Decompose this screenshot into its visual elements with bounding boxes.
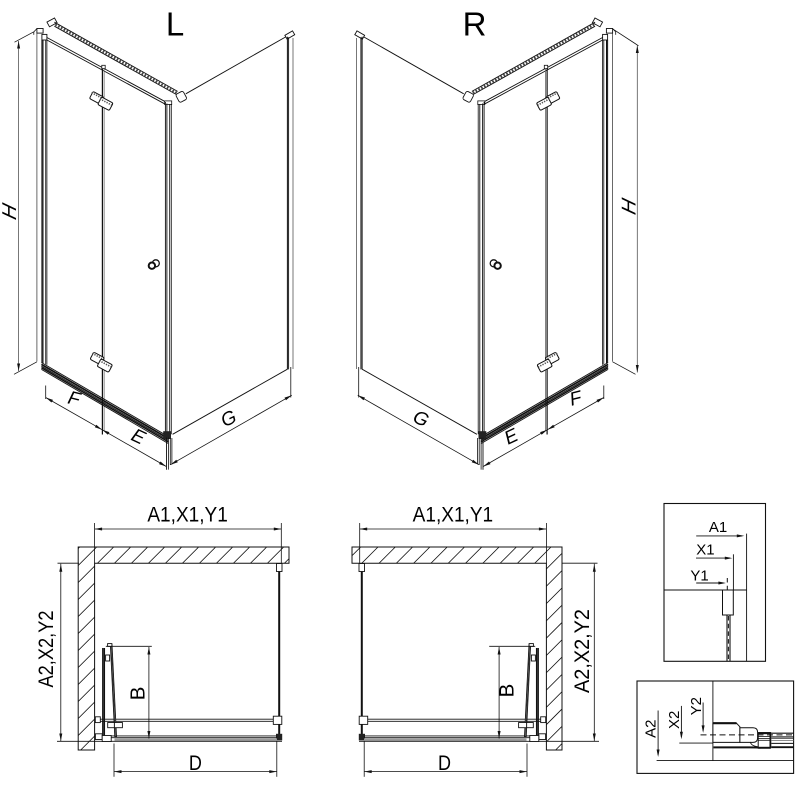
svg-text:A2,X2,Y2: A2,X2,Y2 (571, 609, 594, 693)
svg-text:A2,X2,Y2: A2,X2,Y2 (35, 611, 58, 688)
svg-text:D: D (189, 752, 202, 775)
svg-text:B: B (496, 684, 519, 698)
svg-text:Y1: Y1 (690, 568, 708, 585)
svg-text:R: R (463, 6, 487, 43)
svg-text:D: D (438, 752, 451, 775)
svg-text:X1: X1 (696, 541, 714, 558)
svg-text:L: L (166, 6, 184, 43)
svg-text:A1,X1,Y1: A1,X1,Y1 (147, 502, 228, 526)
svg-text:A1: A1 (709, 519, 727, 536)
svg-text:A1,X1,Y1: A1,X1,Y1 (413, 502, 494, 526)
svg-text:B: B (127, 687, 150, 701)
svg-text:Y2: Y2 (688, 697, 705, 715)
svg-text:A2: A2 (643, 720, 660, 738)
svg-text:X2: X2 (666, 711, 683, 729)
